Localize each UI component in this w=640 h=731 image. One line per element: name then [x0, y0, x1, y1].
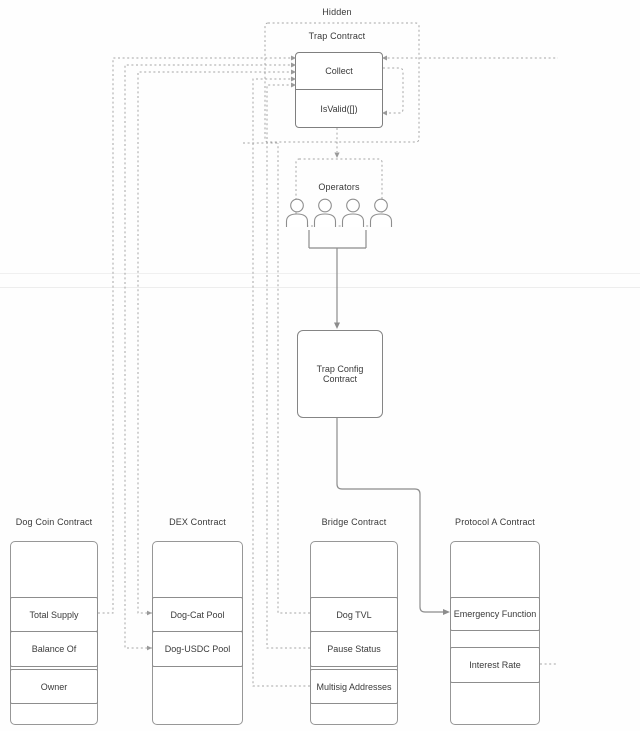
- arrowhead-into-isvalid: [382, 111, 387, 116]
- person-icon: [319, 199, 332, 212]
- arrowhead-into-dog-usdc-pool: [147, 646, 152, 651]
- connector-dog-cat-pool-to-collect: [138, 72, 291, 613]
- arrowhead-into-collect: [291, 83, 296, 88]
- operators-group-box: [296, 159, 382, 226]
- arrowhead-into-collect: [291, 63, 296, 68]
- connector-collect-to-isvalid-loop: [383, 68, 403, 113]
- arrowhead-into-operators: [334, 153, 339, 159]
- arrowhead-into-collect: [291, 70, 296, 75]
- operator-person-icons: [287, 199, 392, 227]
- arrowhead-into-collect-right: [382, 56, 387, 61]
- person-icon-shoulders: [371, 214, 392, 227]
- connector-pause-status-to-collect: [267, 85, 310, 648]
- connector-layer: [0, 0, 640, 731]
- arrowhead-into-dog-cat-pool: [147, 611, 152, 616]
- arrowhead-into-trap-config: [334, 323, 340, 330]
- hidden-group-box: [265, 23, 419, 142]
- connector-trap-config-to-emergency: [337, 418, 443, 612]
- person-icon: [291, 199, 304, 212]
- arrowhead-into-emergency-function: [443, 609, 450, 615]
- person-icon-shoulders: [343, 214, 364, 227]
- connector-total-supply-to-collect: [98, 58, 291, 613]
- person-icon-shoulders: [315, 214, 336, 227]
- person-icon-shoulders: [287, 214, 308, 227]
- person-icon: [375, 199, 388, 212]
- connector-dog-tvl-trunk: [278, 143, 310, 613]
- arrowhead-into-collect: [291, 56, 296, 61]
- arrowhead-into-collect: [291, 77, 296, 82]
- diagram-canvas: Hidden Trap Contract Collect IsValid([])…: [0, 0, 640, 731]
- connector-operators-to-trap-config: [309, 230, 366, 323]
- connector-dog-usdc-pool-to-collect: [125, 65, 291, 648]
- connector-multisig-to-collect: [253, 79, 310, 686]
- person-icon: [347, 199, 360, 212]
